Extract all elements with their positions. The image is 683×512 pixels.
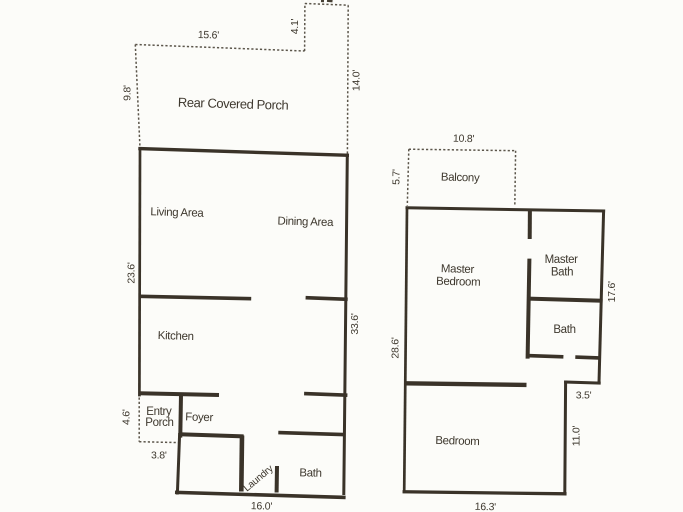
svg-text:33.6': 33.6': [349, 313, 361, 334]
svg-text:Bath: Bath: [551, 267, 573, 279]
svg-text:4.6': 4.6': [121, 409, 133, 425]
svg-text:15.6': 15.6': [198, 29, 220, 42]
svg-text:14.0': 14.0': [350, 70, 362, 91]
svg-text:Bath: Bath: [553, 324, 575, 336]
svg-text:Kitchen: Kitchen: [158, 330, 194, 343]
svg-text:3.8': 3.8': [151, 449, 167, 461]
svg-text:3.5': 3.5': [576, 389, 592, 401]
svg-text:Rear Covered Porch: Rear Covered Porch: [178, 95, 289, 113]
svg-text:Bedroom: Bedroom: [436, 276, 481, 289]
svg-text:Living Area: Living Area: [150, 206, 204, 220]
svg-text:5.7': 5.7': [391, 169, 403, 185]
svg-text:Master: Master: [545, 254, 579, 266]
svg-text:23.6': 23.6': [126, 262, 138, 283]
svg-text:16.0': 16.0': [251, 500, 273, 512]
svg-text:4.1': 4.1': [289, 18, 301, 34]
svg-text:16.3': 16.3': [475, 501, 497, 512]
svg-text:Foyer: Foyer: [185, 411, 213, 424]
svg-text:9.8': 9.8': [122, 85, 134, 101]
svg-text:Master: Master: [441, 263, 475, 276]
svg-text:Bath: Bath: [299, 467, 322, 480]
svg-text:Porch: Porch: [145, 417, 173, 429]
svg-text:17.6': 17.6': [606, 281, 618, 302]
svg-text:28.6': 28.6': [390, 337, 402, 358]
svg-text:Dining Area: Dining Area: [277, 216, 334, 230]
svg-text:Balcony: Balcony: [441, 171, 480, 184]
svg-text:Bedroom: Bedroom: [435, 435, 480, 448]
svg-text:10.8': 10.8': [453, 133, 475, 146]
svg-text:11.0': 11.0': [571, 426, 583, 447]
